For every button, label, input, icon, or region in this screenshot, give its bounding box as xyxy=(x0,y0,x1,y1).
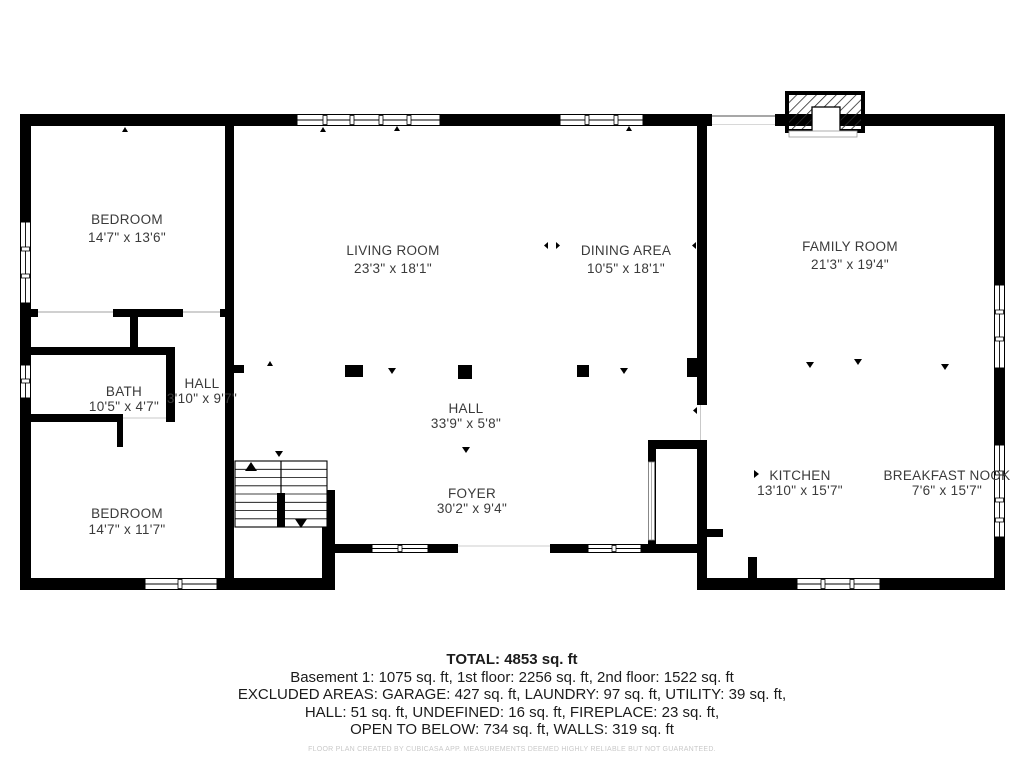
wall-divider-stub xyxy=(687,358,697,377)
room-dims: 13'10" x 15'7" xyxy=(757,483,843,498)
room-label-hall-large: HALL 33'9" x 5'8" xyxy=(431,401,501,431)
room-name: BATH xyxy=(106,384,142,399)
room-name: FAMILY ROOM xyxy=(802,239,898,254)
room-label-kitchen: KITCHEN 13'10" x 15'7" xyxy=(757,468,843,498)
staircase xyxy=(235,451,327,528)
summary-line-excluded-2: HALL: 51 sq. ft, UNDEFINED: 16 sq. ft, F… xyxy=(0,704,1024,722)
window-foyer-right xyxy=(588,545,641,553)
room-name: BREAKFAST NOOK xyxy=(884,468,1011,483)
room-dims: 23'3" x 18'1" xyxy=(354,261,432,276)
window-foyer-left xyxy=(372,545,428,553)
window-bath-left xyxy=(21,365,31,398)
room-dims: 14'7" x 13'6" xyxy=(88,230,166,245)
window-bedroom2-bottom xyxy=(145,579,217,590)
wall-markers xyxy=(122,126,949,478)
area-summary: TOTAL: 4853 sq. ft Basement 1: 1075 sq. … xyxy=(0,651,1024,739)
window-kitchen-bottom xyxy=(797,579,880,590)
room-label-living-room: LIVING ROOM 23'3" x 18'1" xyxy=(346,243,439,276)
floor-plan-drawing: BEDROOM 14'7" x 13'6" LIVING ROOM 23'3" … xyxy=(0,0,1024,640)
summary-line-excluded-1: EXCLUDED AREAS: GARAGE: 427 sq. ft, LAUN… xyxy=(0,686,1024,704)
window-dining-top xyxy=(560,115,643,126)
summary-line-floors: Basement 1: 1075 sq. ft, 1st floor: 2256… xyxy=(0,669,1024,687)
room-label-bedroom-1: BEDROOM 14'7" x 13'6" xyxy=(88,212,166,245)
room-label-dining-area: DINING AREA 10'5" x 18'1" xyxy=(581,243,671,276)
hall-post-2 xyxy=(458,365,472,379)
window-living-top xyxy=(297,115,440,126)
room-label-breakfast-nook: BREAKFAST NOOK 7'6" x 15'7" xyxy=(884,468,1011,498)
room-dims: 33'9" x 5'8" xyxy=(431,416,501,431)
room-label-family-room: FAMILY ROOM 21'3" x 19'4" xyxy=(802,239,898,272)
room-name: BEDROOM xyxy=(91,212,163,227)
room-dims: 21'3" x 19'4" xyxy=(811,257,889,272)
window-family-right xyxy=(995,285,1005,368)
wall-kitchen-stub-v xyxy=(748,557,757,582)
hall-stub xyxy=(234,365,244,373)
staircase-divider xyxy=(277,493,285,527)
wall-dining-family-divider xyxy=(697,114,707,405)
hall-post-3 xyxy=(577,365,589,377)
room-dims: 14'7" x 11'7" xyxy=(89,522,166,537)
floor-plan-page: BEDROOM 14'7" x 13'6" LIVING ROOM 23'3" … xyxy=(0,0,1024,768)
fireplace xyxy=(787,93,863,137)
room-dims: 3'10" x 9'7" xyxy=(167,391,237,406)
room-name: KITCHEN xyxy=(769,468,830,483)
room-name: BEDROOM xyxy=(91,506,163,521)
summary-line-excluded-3: OPEN TO BELOW: 734 sq. ft, WALLS: 319 sq… xyxy=(0,721,1024,739)
room-name: HALL xyxy=(185,376,220,391)
window-stairwell-rail xyxy=(649,462,655,540)
stairs-top-marker xyxy=(275,451,283,457)
room-name: HALL xyxy=(449,401,484,416)
window-nook-right xyxy=(995,445,1005,537)
wall-bath-top xyxy=(20,347,173,355)
kitchen-door-opening xyxy=(697,405,707,440)
room-dims: 10'5" x 4'7" xyxy=(89,399,159,414)
room-label-bath: BATH 10'5" x 4'7" xyxy=(89,384,159,414)
wall-bedroom1-bottom-a xyxy=(27,309,38,317)
room-name: DINING AREA xyxy=(581,243,671,258)
hall-post-1 xyxy=(345,365,363,377)
fireplace-firebox xyxy=(812,107,840,133)
room-label-foyer: FOYER 30'2" x 9'4" xyxy=(437,486,507,516)
entry-door-opening xyxy=(458,544,550,553)
total-area: TOTAL: 4853 sq. ft xyxy=(0,651,1024,669)
window-bedroom1-left xyxy=(21,222,31,303)
wall-bedroom1-bottom-c xyxy=(220,309,234,317)
wall-bedroom1-bottom-b xyxy=(113,309,183,317)
disclaimer-text: FLOOR PLAN CREATED BY CUBICASA APP. MEAS… xyxy=(0,746,1024,753)
wall-bath-bottom xyxy=(20,414,123,422)
room-dims: 10'5" x 18'1" xyxy=(587,261,665,276)
wall-kitchen-left xyxy=(697,440,707,590)
wall-bath-right xyxy=(166,347,175,422)
wall-bedroom2-jamb xyxy=(117,422,123,447)
wall-living-left xyxy=(225,120,234,590)
room-name: LIVING ROOM xyxy=(346,243,439,258)
wall-closet-divider xyxy=(130,309,138,348)
room-name: FOYER xyxy=(448,486,496,501)
openings xyxy=(38,114,775,553)
room-dims: 7'6" x 15'7" xyxy=(912,483,982,498)
room-label-bedroom-2: BEDROOM 14'7" x 11'7" xyxy=(89,506,166,537)
fireplace-hearth xyxy=(789,131,857,137)
wall-kitchen-stub-h xyxy=(707,529,723,537)
room-dims: 30'2" x 9'4" xyxy=(437,501,507,516)
